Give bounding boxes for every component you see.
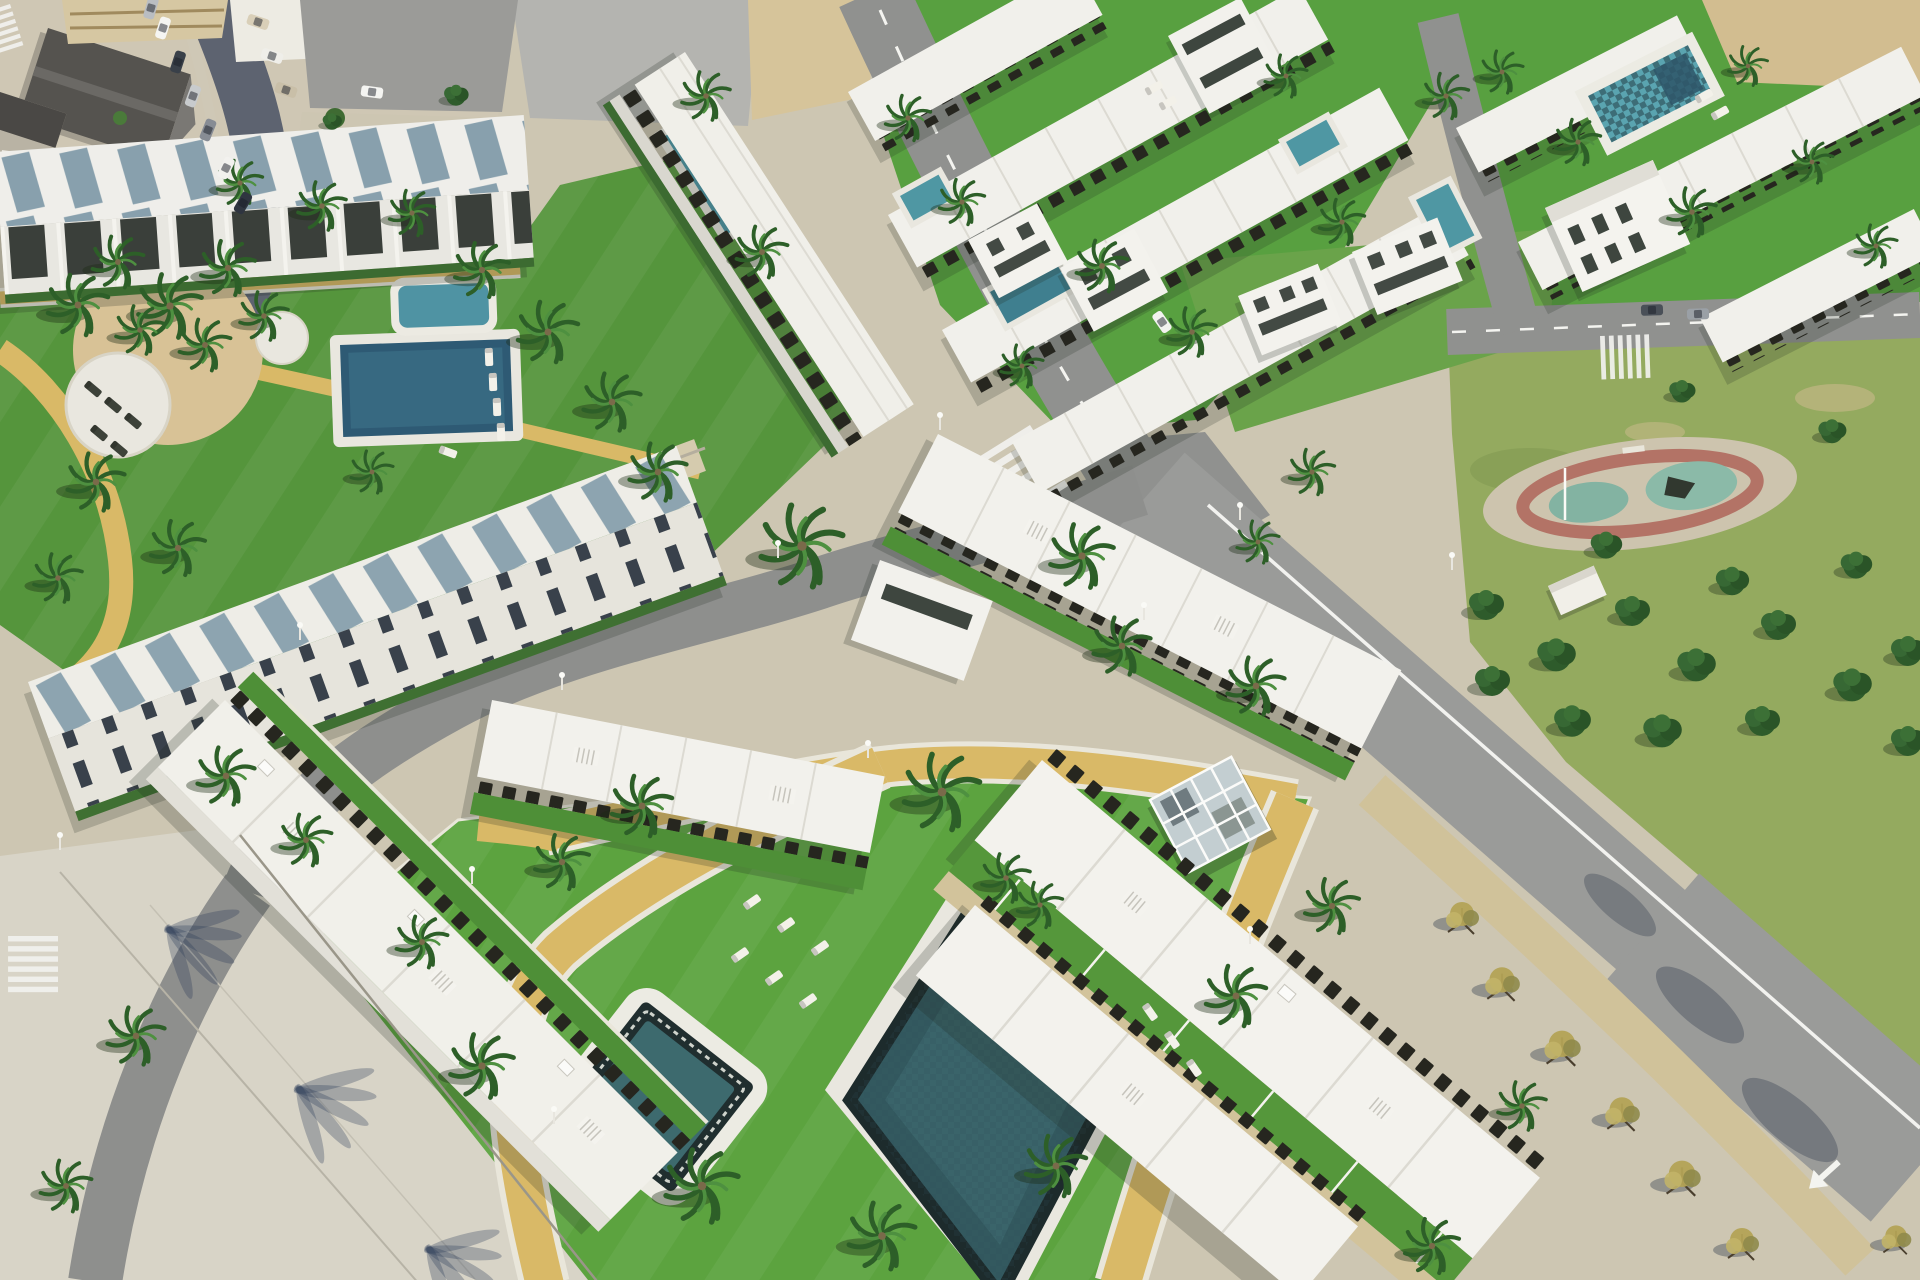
- sun-lounger: [497, 423, 506, 441]
- sun-lounger: [485, 348, 494, 366]
- shrub-3: [113, 111, 127, 125]
- car: [1641, 304, 1663, 316]
- old-terrace-row: [62, 0, 228, 44]
- park-dirt-1: [1795, 384, 1875, 412]
- screenshot-canvas: [0, 0, 1920, 1280]
- old-parking-roof: [300, 0, 518, 112]
- car: [1687, 308, 1709, 320]
- sun-lounger: [489, 373, 498, 391]
- sun-lounger: [493, 398, 502, 416]
- scene: [0, 0, 1920, 1280]
